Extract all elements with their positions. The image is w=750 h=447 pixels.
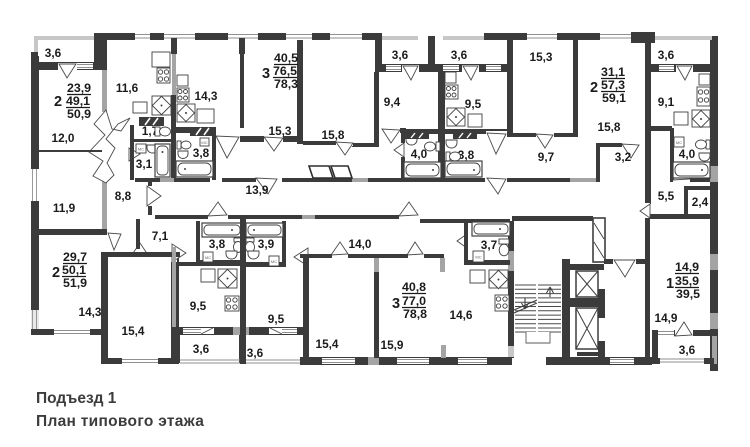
svg-text:14,3: 14,3 [195,89,218,103]
svg-text:2: 2 [590,80,598,96]
svg-text:9,7: 9,7 [538,150,555,164]
svg-text:77,0: 77,0 [402,294,426,308]
svg-text:4,0: 4,0 [679,147,696,161]
svg-text:9,5: 9,5 [190,299,207,313]
svg-text:57,3: 57,3 [601,78,625,92]
svg-text:9,1: 9,1 [658,95,675,109]
svg-text:3,6: 3,6 [247,346,264,360]
svg-text:11,9: 11,9 [53,201,76,215]
svg-text:78,8: 78,8 [403,307,427,321]
svg-text:78,3: 78,3 [274,77,298,91]
svg-text:14,9: 14,9 [675,260,699,274]
svg-text:3,6: 3,6 [392,48,409,62]
svg-text:3,9: 3,9 [258,237,275,251]
svg-text:3,6: 3,6 [658,48,675,62]
svg-text:МС: МС [475,255,481,260]
svg-text:15,9: 15,9 [381,338,404,352]
svg-text:29,7: 29,7 [63,250,87,264]
svg-text:13,9: 13,9 [246,183,269,197]
svg-text:15,3: 15,3 [530,50,553,64]
svg-text:40,5: 40,5 [274,51,298,65]
svg-text:15,4: 15,4 [122,324,145,338]
svg-text:7,1: 7,1 [152,229,169,243]
svg-text:3,1: 3,1 [136,157,153,171]
svg-text:50,1: 50,1 [62,263,86,277]
svg-text:3,8: 3,8 [209,237,226,251]
svg-text:59,1: 59,1 [602,91,626,105]
svg-text:МС: МС [271,259,277,264]
svg-text:1: 1 [666,276,674,292]
svg-text:15,3: 15,3 [269,124,292,138]
svg-text:3,6: 3,6 [193,342,210,356]
svg-text:3,6: 3,6 [45,46,62,60]
svg-text:9,5: 9,5 [268,312,285,326]
svg-text:3,8: 3,8 [193,146,210,160]
svg-text:11,6: 11,6 [116,81,139,95]
svg-text:49,1: 49,1 [66,94,90,108]
svg-text:14,6: 14,6 [450,308,473,322]
svg-text:76,5: 76,5 [273,64,297,78]
svg-text:5,5: 5,5 [658,189,675,203]
svg-text:14,0: 14,0 [349,237,372,251]
svg-text:40,8: 40,8 [402,280,426,294]
svg-text:3,7: 3,7 [481,238,498,252]
svg-text:3,6: 3,6 [451,48,468,62]
svg-text:9,5: 9,5 [465,97,482,111]
svg-text:2,4: 2,4 [692,195,709,209]
svg-text:35,9: 35,9 [675,274,699,288]
svg-text:15,8: 15,8 [322,128,345,142]
svg-text:МС: МС [205,255,211,260]
svg-text:Подъезд 1: Подъезд 1 [36,390,117,407]
svg-text:12,0: 12,0 [52,131,75,145]
svg-text:2: 2 [52,265,60,281]
svg-text:14,3: 14,3 [79,305,102,319]
svg-text:39,5: 39,5 [676,287,700,301]
svg-text:23,9: 23,9 [67,81,91,95]
svg-text:МС: МС [138,147,144,152]
svg-text:50,9: 50,9 [67,107,91,121]
svg-text:3,6: 3,6 [679,343,696,357]
svg-text:14,9: 14,9 [655,311,678,325]
svg-text:2: 2 [54,94,62,110]
svg-text:МС: МС [676,140,682,145]
svg-text:15,8: 15,8 [598,120,621,134]
svg-text:31,1: 31,1 [601,65,625,79]
svg-text:План типового этажа: План типового этажа [36,413,204,430]
svg-text:9,4: 9,4 [384,95,401,109]
svg-text:3: 3 [392,296,400,312]
svg-text:МС: МС [201,140,207,145]
svg-text:8,8: 8,8 [115,189,132,203]
svg-text:3: 3 [262,66,270,82]
svg-text:15,4: 15,4 [316,337,339,351]
svg-text:51,9: 51,9 [63,276,87,290]
svg-text:3,2: 3,2 [615,150,632,164]
